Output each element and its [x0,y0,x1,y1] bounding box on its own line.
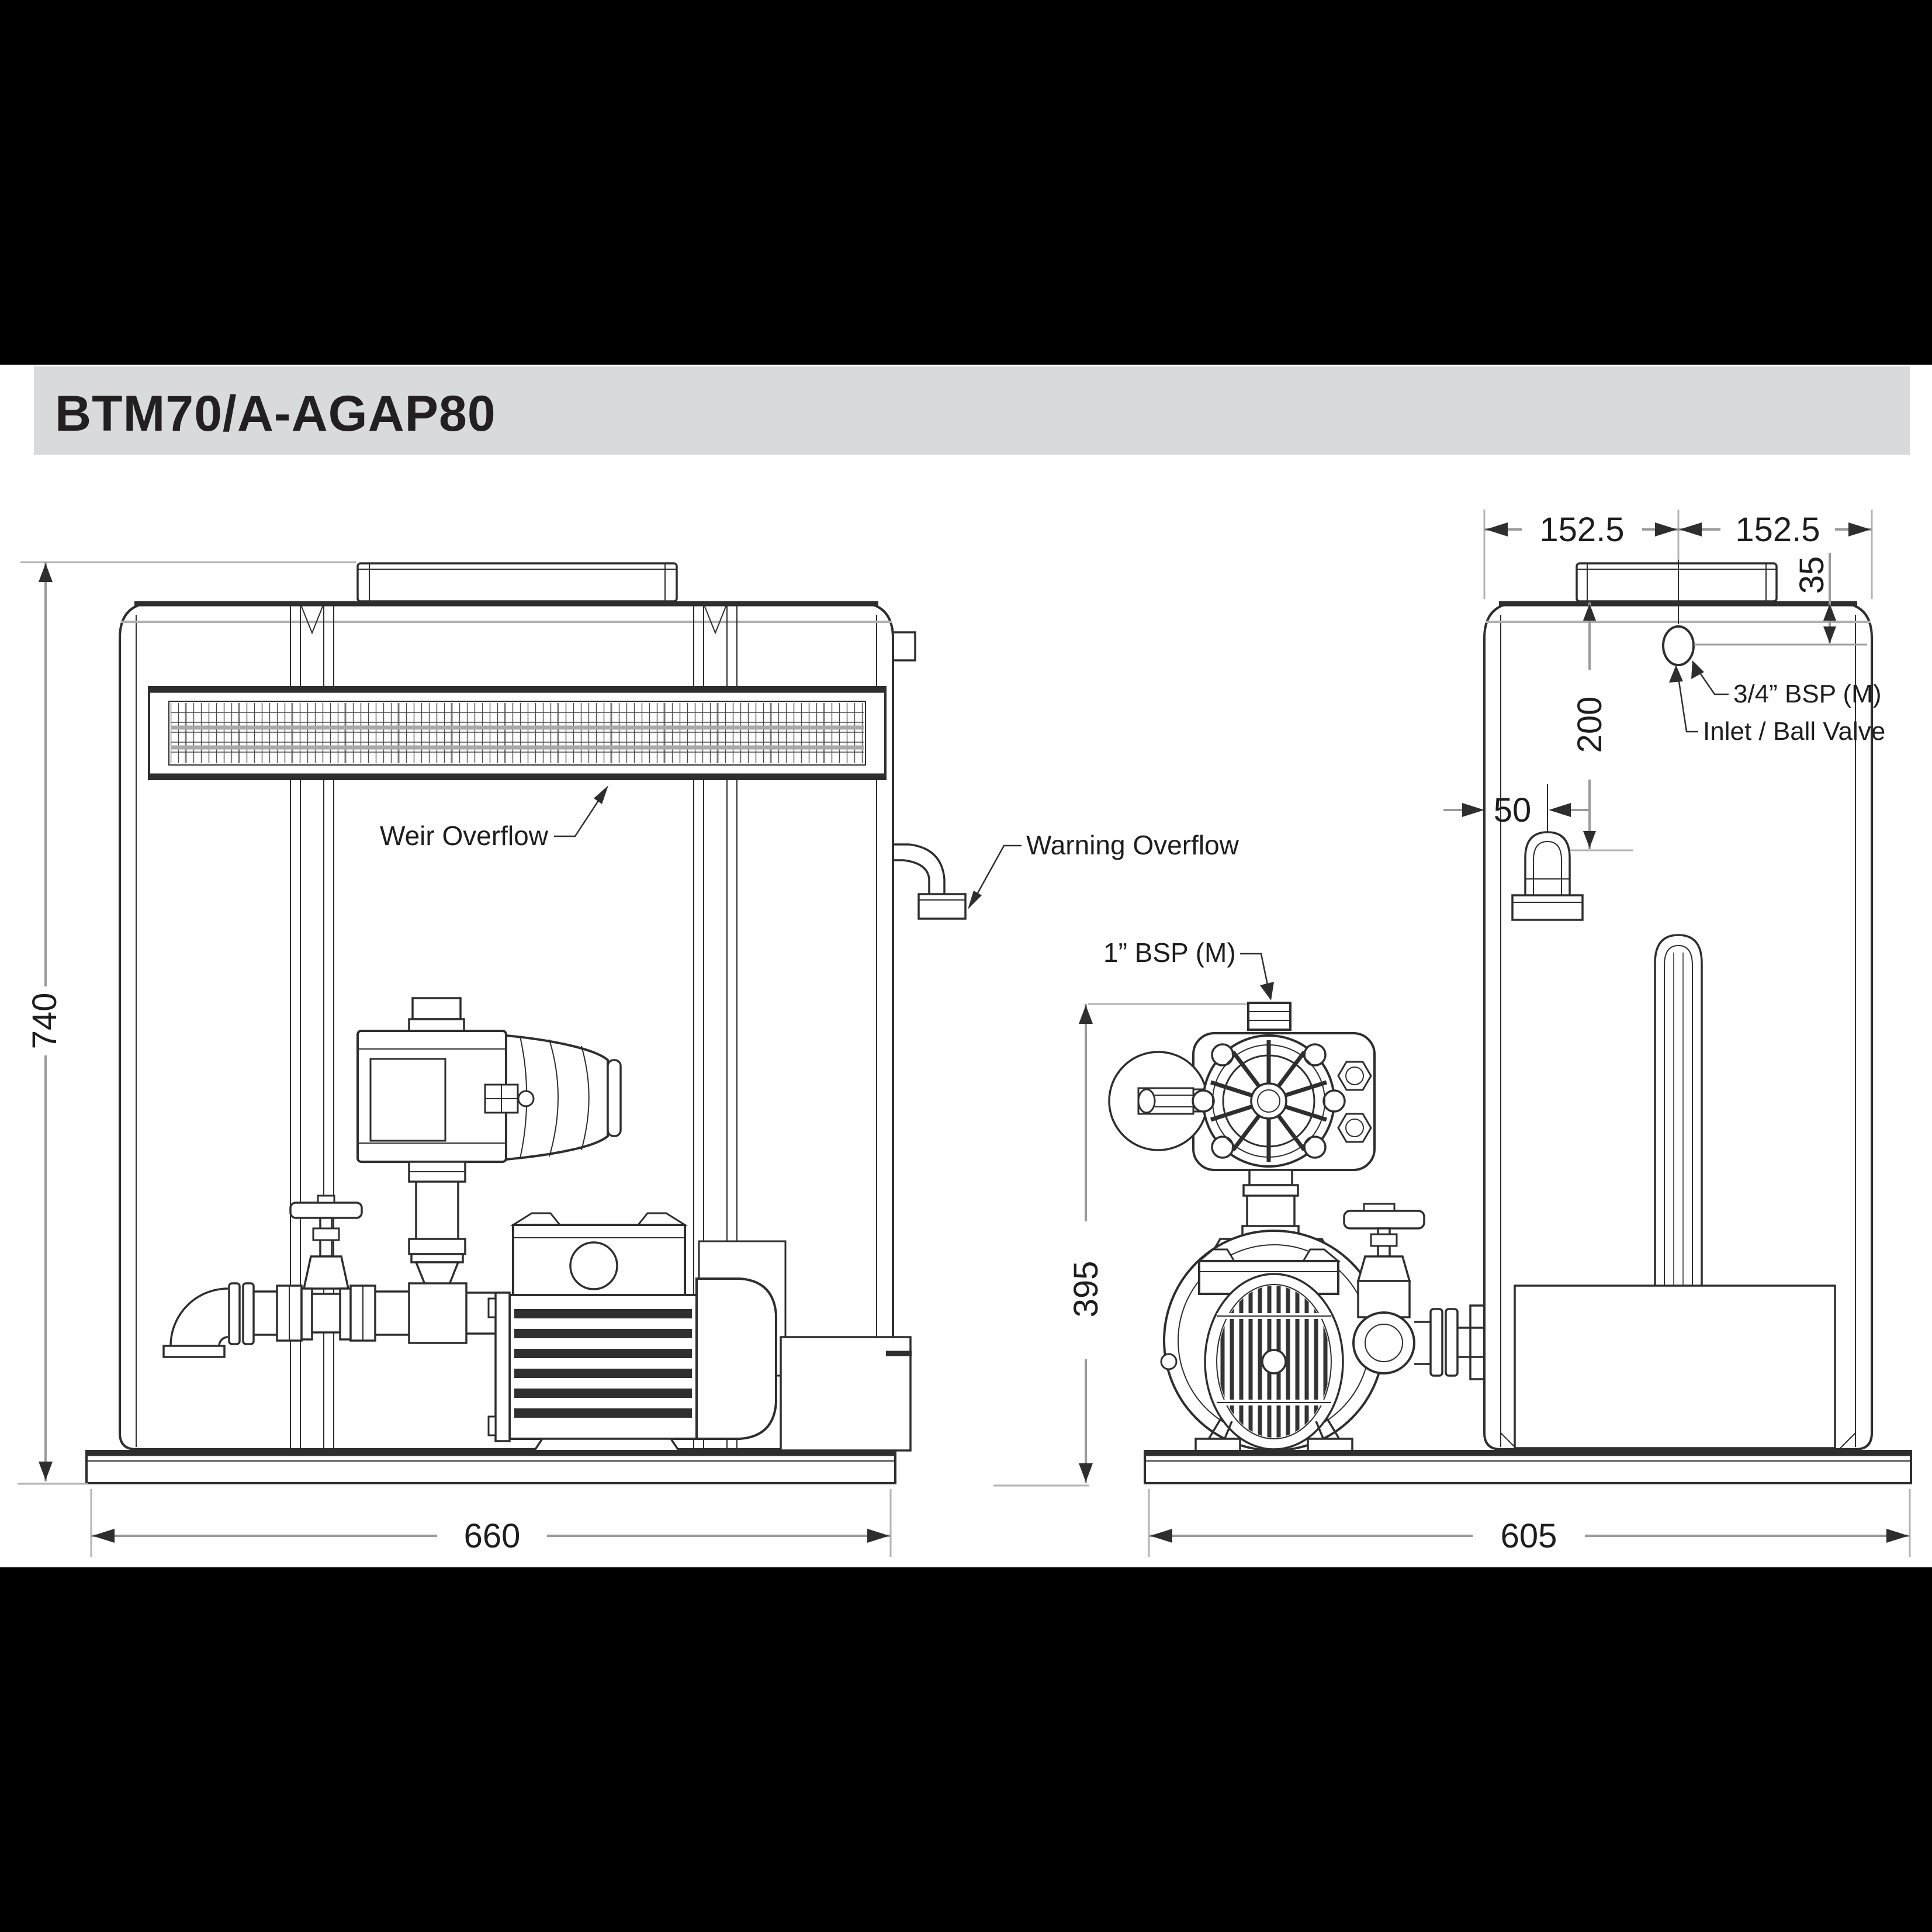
dim-152-right-label: 152.5 [1735,511,1820,549]
inlet-valve-label: Inlet / Ball Valve [1703,717,1885,746]
side-base-plate [1145,1451,1911,1483]
dim-395-label: 395 [1067,1261,1105,1318]
inlet-thread-label: 3/4” BSP (M) [1733,680,1881,708]
side-tank-recess [1515,1286,1835,1448]
pump-outlet-fitting [1248,1003,1290,1030]
dim-200-label: 200 [1571,697,1609,753]
pump-pressure-controller [1109,1033,1374,1170]
outlet-thread-label: 1” BSP (M) [1103,937,1236,968]
front-tank-lid [358,563,677,601]
dim-605-label: 605 [1501,1517,1557,1555]
side-tank-lid [1577,563,1777,601]
weir-overflow-label: Weir Overflow [380,820,549,851]
bottom-letterbox-band [0,1567,1932,1932]
weir-overflow-screen [149,687,885,779]
page-title: BTM70/A-AGAP80 [55,386,496,442]
dim-35-label: 35 [1793,556,1831,594]
dim-740-label: 740 [26,993,64,1050]
drawing-canvas: BTM70/A-AGAP80 [0,0,1932,1932]
dim-152-left-label: 152.5 [1539,511,1624,549]
dim-660-label: 660 [464,1517,521,1555]
warning-overflow-label: Warning Overflow [1026,830,1239,860]
technical-drawing-page: BTM70/A-AGAP80 [0,0,1932,1932]
title-bar: BTM70/A-AGAP80 [34,366,1910,455]
top-letterbox-band [0,0,1932,365]
front-base-plate [86,1451,895,1483]
dim-50-label: 50 [1494,791,1532,829]
